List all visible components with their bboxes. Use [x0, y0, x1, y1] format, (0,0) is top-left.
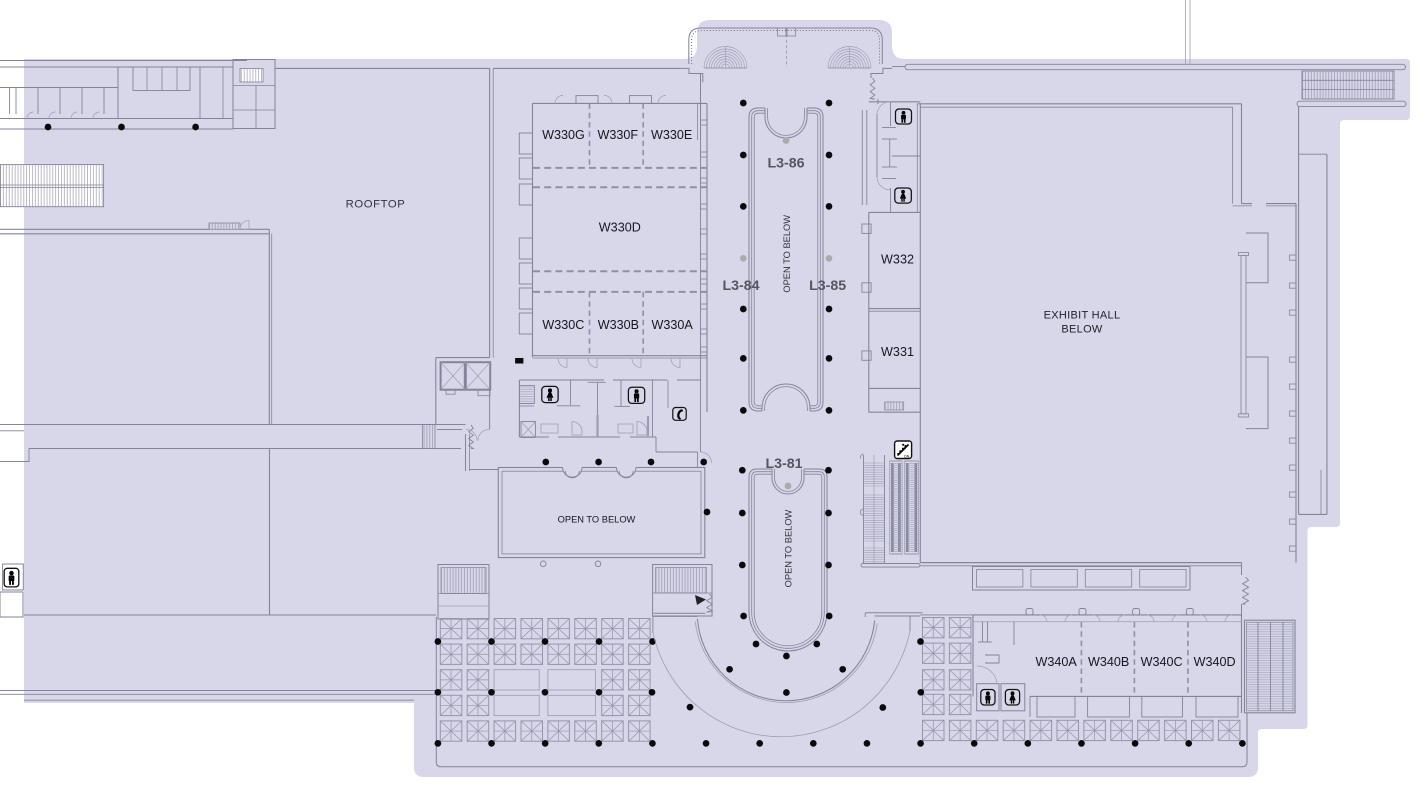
- svg-text:W331: W331: [881, 345, 914, 359]
- svg-text:OPEN TO BELOW: OPEN TO BELOW: [558, 514, 636, 524]
- svg-text:W340B: W340B: [1088, 655, 1129, 669]
- svg-text:BELOW: BELOW: [1061, 324, 1103, 336]
- svg-text:W340D: W340D: [1194, 655, 1236, 669]
- svg-text:OPEN TO BELOW: OPEN TO BELOW: [783, 509, 793, 587]
- svg-text:W330F: W330F: [598, 128, 639, 142]
- svg-text:W330E: W330E: [651, 128, 692, 142]
- svg-text:DN: DN: [904, 454, 910, 458]
- svg-text:EXHIBIT HALL: EXHIBIT HALL: [1044, 310, 1121, 322]
- svg-text:W330C: W330C: [542, 318, 584, 332]
- svg-text:L3-85: L3-85: [809, 278, 846, 294]
- svg-text:L3-86: L3-86: [767, 156, 804, 172]
- svg-text:OPEN TO BELOW: OPEN TO BELOW: [782, 215, 792, 293]
- svg-text:W332: W332: [881, 253, 914, 267]
- svg-text:W330D: W330D: [599, 221, 641, 235]
- svg-text:L3-81: L3-81: [765, 456, 802, 472]
- svg-text:W340C: W340C: [1141, 655, 1183, 669]
- svg-text:W330G: W330G: [542, 128, 585, 142]
- svg-text:W340A: W340A: [1036, 655, 1078, 669]
- svg-text:W330B: W330B: [598, 318, 639, 332]
- svg-text:ROOFTOP: ROOFTOP: [346, 199, 406, 211]
- svg-text:L3-84: L3-84: [722, 278, 759, 294]
- svg-text:W330A: W330A: [652, 318, 694, 332]
